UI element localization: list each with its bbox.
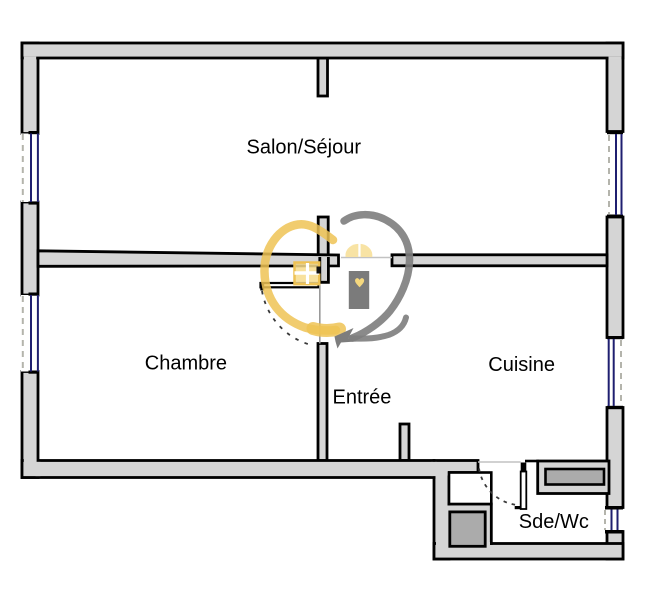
svg-text:Salon/Séjour: Salon/Séjour: [247, 137, 362, 159]
svg-text:Chambre: Chambre: [145, 352, 227, 374]
svg-text:Sde/Wc: Sde/Wc: [519, 511, 589, 533]
svg-text:Cuisine: Cuisine: [488, 354, 555, 376]
svg-text:Entrée: Entrée: [333, 386, 392, 408]
